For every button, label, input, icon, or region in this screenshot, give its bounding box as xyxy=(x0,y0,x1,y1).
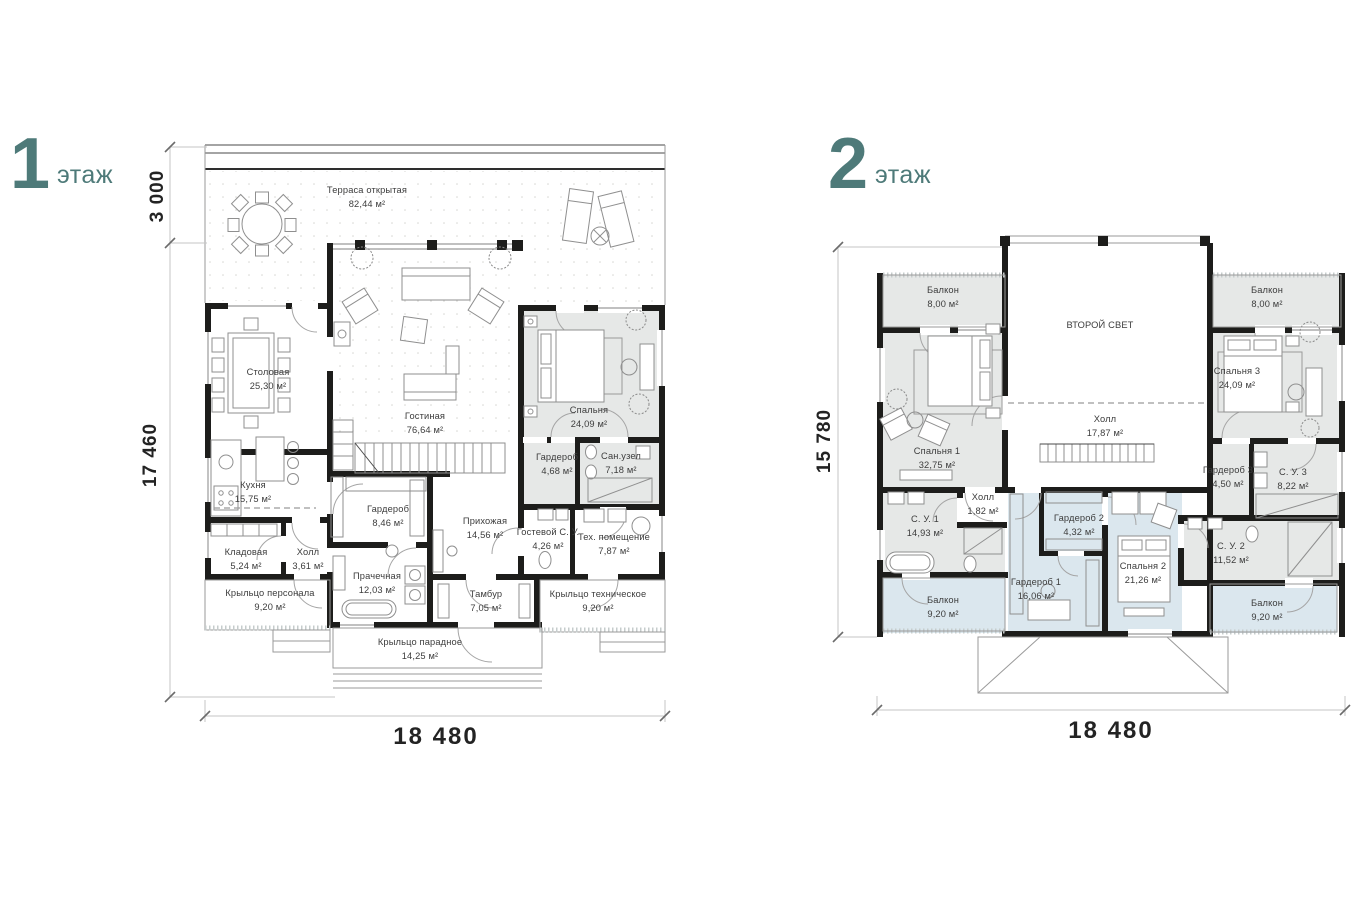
room-label-holl-182: Холл1,82 м² xyxy=(967,491,998,519)
room-label-garderob-846: Гардероб8,46 м² xyxy=(367,503,409,531)
dim-floor2-width: 18 480 xyxy=(1068,717,1153,745)
room-label-tambur: Тамбур7,05 м² xyxy=(470,588,502,616)
second-light-label: ВТОРОЙ СВЕТ xyxy=(1066,319,1133,333)
room-label-holl-2: Холл17,87 м² xyxy=(1087,413,1124,441)
dim-floor1-width: 18 480 xyxy=(393,723,478,751)
room-label-spalnya-3: Спальня 324,09 м² xyxy=(1214,365,1260,393)
room-label-kladovaya: Кладовая5,24 м² xyxy=(225,546,268,574)
room-label-balkon-tr: Балкон8,00 м² xyxy=(1251,284,1283,312)
dim-floor1-terrace-depth: 3 000 xyxy=(147,170,169,223)
room-label-krylco-paradnoe: Крыльцо парадное14,25 м² xyxy=(378,636,462,664)
floor1-word: этаж xyxy=(57,161,113,192)
floor-plans-drawing xyxy=(0,0,1360,900)
floor2-header: 2 этаж xyxy=(828,136,931,192)
room-label-su-1: С. У. 114,93 м² xyxy=(907,513,944,541)
room-label-teh-pomeshenie: Тех. помещение7,87 м² xyxy=(578,531,650,559)
room-label-spalnya-2: Спальня 221,26 м² xyxy=(1120,560,1166,588)
room-label-garderob-1: Гардероб 116,06 м² xyxy=(1011,576,1061,604)
room-label-garderob-3: Гардероб 34,50 м² xyxy=(1203,464,1253,492)
room-label-terrace: Терраса открытая82,44 м² xyxy=(327,184,407,212)
dim-floor1-height: 17 460 xyxy=(140,423,162,487)
room-label-garderob-2: Гардероб 24,32 м² xyxy=(1054,512,1104,540)
floor2-number: 2 xyxy=(828,136,868,192)
room-label-balkon-bl: Балкон9,20 м² xyxy=(927,594,959,622)
floor1-number: 1 xyxy=(10,136,50,192)
room-label-krylco-personala: Крыльцо персонала9,20 м² xyxy=(225,587,314,615)
room-label-garderob-468: Гардероб4,68 м² xyxy=(536,451,578,479)
room-label-sanuzel: Сан.узел7,18 м² xyxy=(601,450,641,478)
room-label-gostevoy-su: Гостевой С. У.4,26 м² xyxy=(517,526,580,554)
floor2-word: этаж xyxy=(875,161,931,192)
room-label-balkon-br: Балкон9,20 м² xyxy=(1251,597,1283,625)
room-label-prachechnaya: Прачечная12,03 м² xyxy=(353,570,401,598)
room-label-balkon-tl: Балкон8,00 м² xyxy=(927,284,959,312)
dim-floor2-height: 15 780 xyxy=(814,409,836,473)
room-label-su-2: С. У. 211,52 м² xyxy=(1213,540,1249,568)
room-label-stolovaya: Столовая25,30 м² xyxy=(247,366,290,394)
floor1-header: 1 этаж xyxy=(10,136,113,192)
room-label-kuhnya: Кухня15,75 м² xyxy=(235,479,272,507)
room-label-prihozhaya: Прихожая14,56 м² xyxy=(463,515,507,543)
room-label-gostinaya: Гостиная76,64 м² xyxy=(405,410,445,438)
room-label-spalnya-1: Спальня 132,75 м² xyxy=(914,445,960,473)
room-label-holl: Холл3,61 м² xyxy=(292,546,323,574)
room-label-krylco-tehnicheskoe: Крыльцо техническое9,20 м² xyxy=(550,588,647,616)
room-label-spalnya: Спальня24,09 м² xyxy=(570,404,608,432)
room-label-su-3: С. У. 38,22 м² xyxy=(1277,466,1308,494)
